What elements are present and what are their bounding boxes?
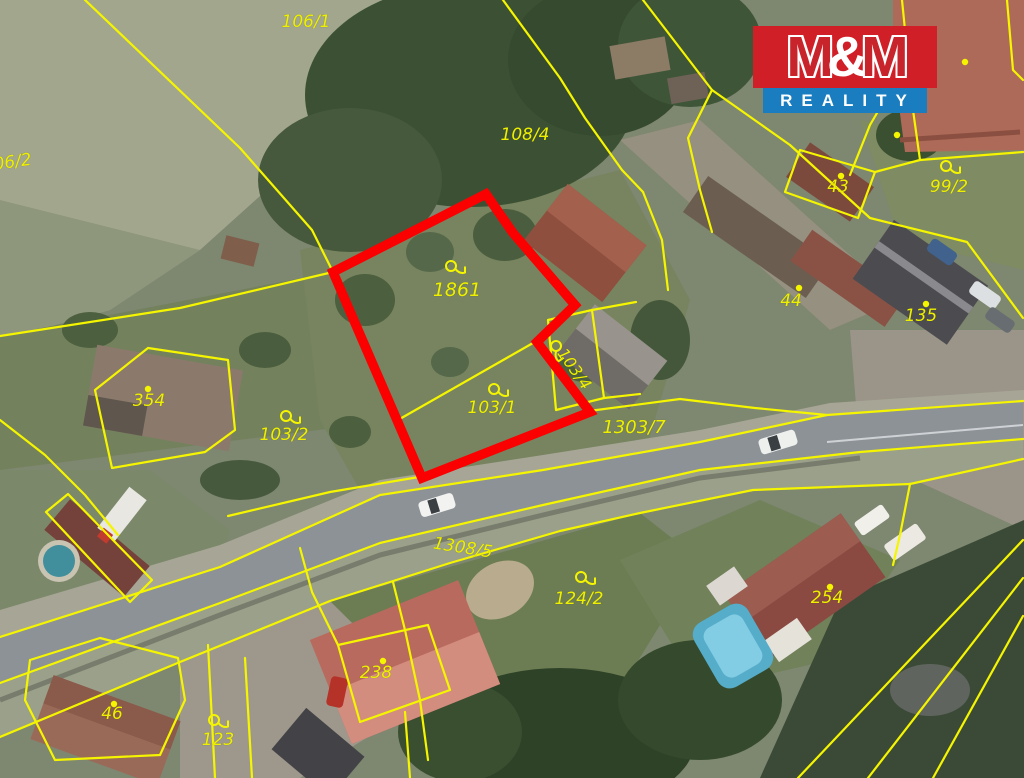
parcel-label-46: 46 — [101, 704, 123, 724]
building-dot — [894, 132, 900, 138]
parcel-label-1861: 1861 — [433, 279, 481, 301]
mm-reality-logo: M&M REALITY — [753, 26, 937, 113]
logo-letter-m: M — [861, 26, 903, 88]
parcel-label-238: 238 — [360, 663, 393, 683]
logo-letter-m: M — [786, 26, 828, 88]
round-pool — [43, 545, 75, 577]
parcel-label-103-2: 103/2 — [260, 425, 309, 445]
parcel-label-354: 354 — [133, 391, 165, 411]
parcel-label-43: 43 — [827, 177, 849, 197]
logo-mm-block: M&M — [753, 26, 937, 88]
logo-ampersand: & — [827, 26, 863, 88]
parcel-label-108-4: 108/4 — [501, 125, 550, 145]
parcel-label-123: 123 — [202, 730, 234, 750]
building-dot — [962, 59, 968, 65]
parcel-label-44: 44 — [780, 291, 802, 311]
parcel-label-254: 254 — [811, 588, 843, 608]
logo-reality-bar: REALITY — [763, 88, 927, 113]
parcel-label-103-1: 103/1 — [468, 398, 517, 418]
parcel-label-99-2: 99/2 — [930, 177, 968, 197]
parcel-label-124-2: 124/2 — [555, 589, 604, 609]
parcel-label-135: 135 — [905, 306, 937, 326]
parcel-label-1303-7: 1303/7 — [602, 417, 666, 438]
map-canvas[interactable]: 106/1106/2108/41861103/1103/4103/21303/7… — [0, 0, 1024, 778]
aerial-map-view[interactable]: 106/1106/2108/41861103/1103/4103/21303/7… — [0, 0, 1024, 778]
parcel-label-106-1: 106/1 — [282, 12, 331, 32]
